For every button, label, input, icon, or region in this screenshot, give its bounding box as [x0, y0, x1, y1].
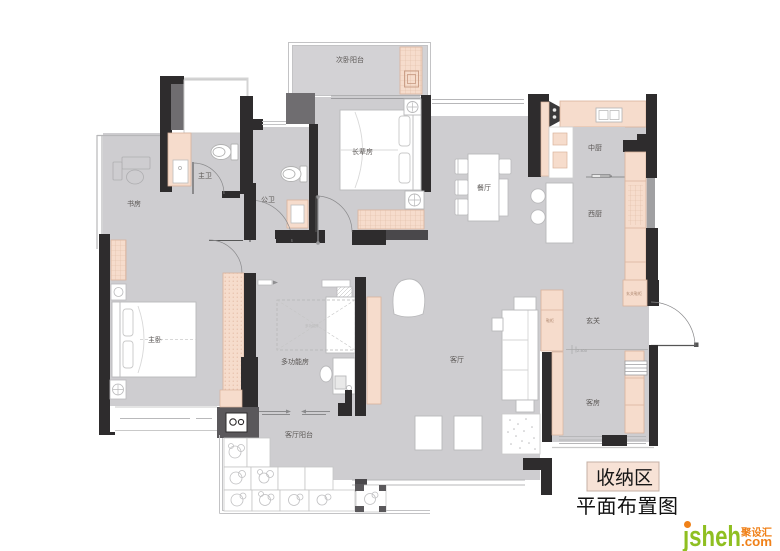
- svg-text:ȷsheh: ȷsheh: [682, 521, 741, 551]
- svg-text:主卫: 主卫: [198, 171, 212, 180]
- svg-text:平面布置图: 平面布置图: [576, 495, 679, 518]
- svg-text:餐厅: 餐厅: [477, 183, 491, 192]
- svg-text:收纳区: 收纳区: [596, 467, 653, 489]
- svg-text:客厅阳台: 客厅阳台: [285, 430, 313, 439]
- svg-text:公卫: 公卫: [261, 196, 275, 204]
- svg-text:中厨: 中厨: [588, 143, 602, 152]
- svg-text:次卧阳台: 次卧阳台: [336, 55, 364, 64]
- svg-text:多功能房: 多功能房: [281, 357, 309, 366]
- svg-text:多功能床: 多功能床: [305, 323, 319, 328]
- svg-text:玄关鞋柜: 玄关鞋柜: [626, 290, 642, 296]
- svg-text:客厅: 客厅: [450, 355, 464, 364]
- svg-text:鞋柜: 鞋柜: [546, 317, 554, 323]
- svg-text:客房: 客房: [586, 398, 600, 407]
- svg-text:玄关: 玄关: [586, 316, 600, 325]
- svg-text:西厨: 西厨: [588, 210, 602, 218]
- svg-text:主卧: 主卧: [148, 335, 162, 344]
- svg-text:.com: .com: [741, 534, 772, 549]
- svg-text:长辈房: 长辈房: [352, 147, 373, 156]
- svg-text:书房: 书房: [127, 199, 141, 208]
- svg-text:2.400: 2.400: [577, 348, 588, 353]
